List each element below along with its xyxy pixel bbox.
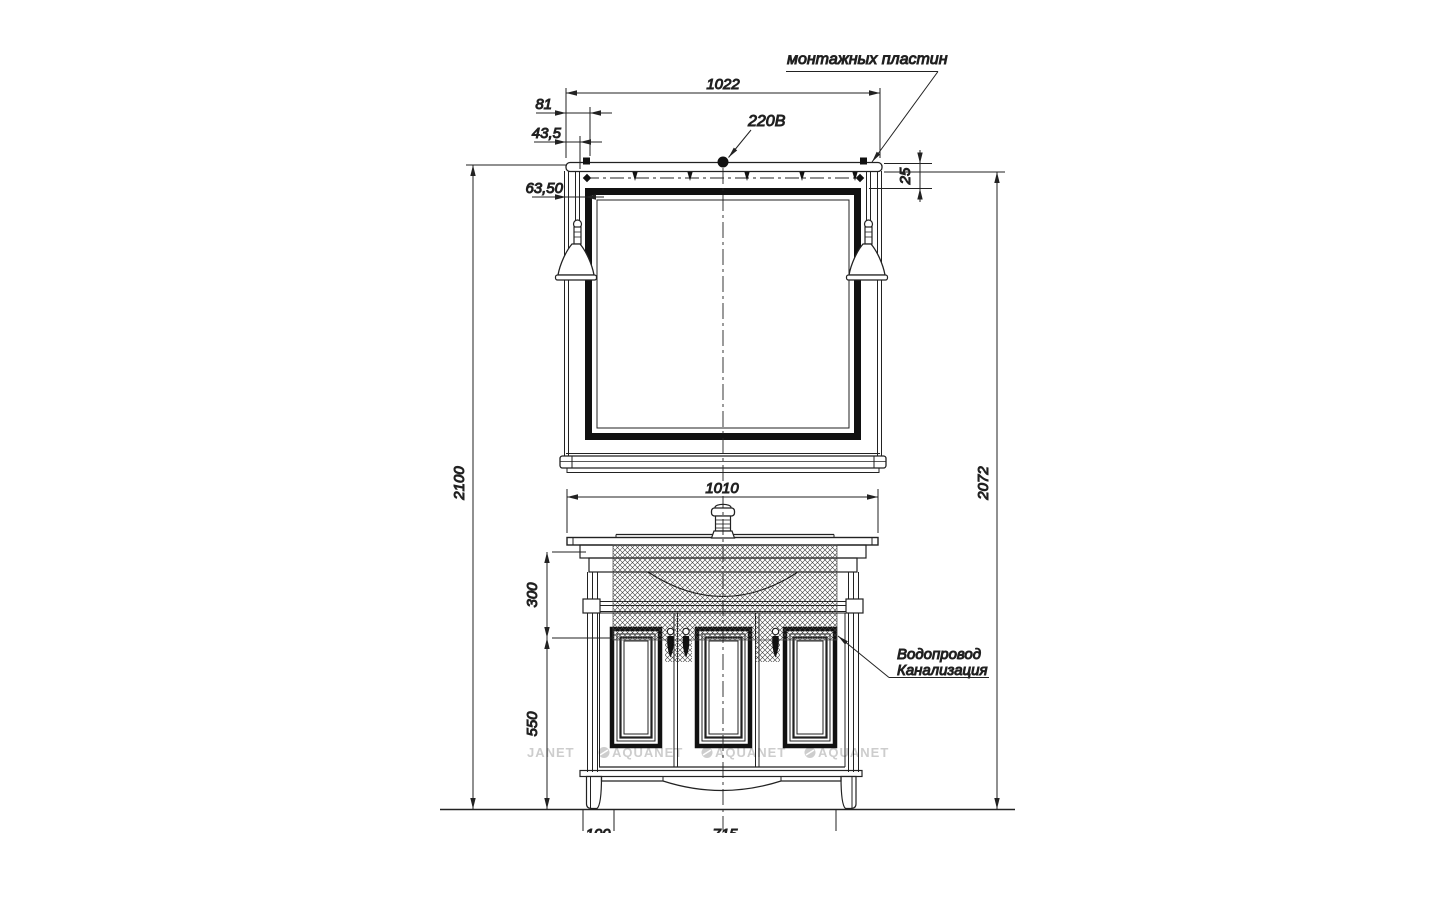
dim-text-43-5: 43,5 xyxy=(532,125,562,142)
label-sewerage: Канализация xyxy=(897,662,988,679)
label-plumbing: Водопровод Канализация xyxy=(838,636,989,679)
mirror-assembly xyxy=(556,157,888,473)
mounting-plate-left xyxy=(583,158,590,165)
dim-text-1010: 1010 xyxy=(705,480,739,497)
watermark-partial: JANET xyxy=(527,745,575,760)
mounting-centerline xyxy=(583,172,864,182)
dim-text-1022: 1022 xyxy=(706,76,740,93)
plumbing-hatch-zone xyxy=(613,545,837,662)
svg-text:AQUANET: AQUANET xyxy=(715,745,786,760)
dim-top-section-300: 300 xyxy=(524,552,612,638)
apron-arch xyxy=(602,777,842,791)
dim-text-25: 25 xyxy=(897,167,914,185)
dim-total-height-2100: 2100 xyxy=(451,165,566,809)
dim-text-81: 81 xyxy=(535,96,552,113)
svg-text:220В: 220В xyxy=(747,113,786,130)
dim-text-leg-inset: 100 xyxy=(585,826,611,843)
drawing-page: 1022 81 43,5 63,50 xyxy=(0,0,1456,914)
svg-text:AQUANET: AQUANET xyxy=(612,745,683,760)
watermark-brand-1: AQUANET xyxy=(599,745,684,760)
dim-upper-height-2072: 2072 xyxy=(884,172,1005,809)
door-center xyxy=(697,629,750,746)
door-right xyxy=(785,629,835,746)
dim-text-63-50: 63,50 xyxy=(525,180,563,197)
dim-bottom-cutoff: 100 715 xyxy=(583,810,836,843)
leg-right xyxy=(841,777,856,809)
mounting-plate-right xyxy=(860,158,867,165)
leg-left xyxy=(587,777,602,809)
label-water-supply: Водопровод xyxy=(897,646,981,663)
label-mounting-plates: монтажных пластин xyxy=(786,51,948,162)
dim-text-550: 550 xyxy=(524,711,541,737)
dim-cabinet-height-550: 550 xyxy=(524,638,550,809)
dim-text-leg-span: 715 xyxy=(712,826,738,843)
dim-plate-drop-25: 25 xyxy=(869,150,932,202)
label-power-220v: 220В xyxy=(729,113,786,158)
watermark-brand-3: AQUANET xyxy=(805,745,890,760)
svg-text:AQUANET: AQUANET xyxy=(818,745,889,760)
dim-text-300: 300 xyxy=(524,582,541,608)
watermark-row: JANET AQUANET AQUANET AQUANET xyxy=(527,745,889,760)
technical-drawing: 1022 81 43,5 63,50 xyxy=(0,0,1456,914)
dim-mirror-width-1022: 1022 xyxy=(566,76,880,158)
watermark-brand-2: AQUANET xyxy=(702,745,787,760)
dim-text-2072: 2072 xyxy=(975,466,992,501)
door-left xyxy=(612,629,660,746)
power-connection-dot xyxy=(718,157,729,168)
svg-text:монтажных пластин: монтажных пластин xyxy=(787,51,948,68)
dim-text-2100: 2100 xyxy=(451,466,468,501)
